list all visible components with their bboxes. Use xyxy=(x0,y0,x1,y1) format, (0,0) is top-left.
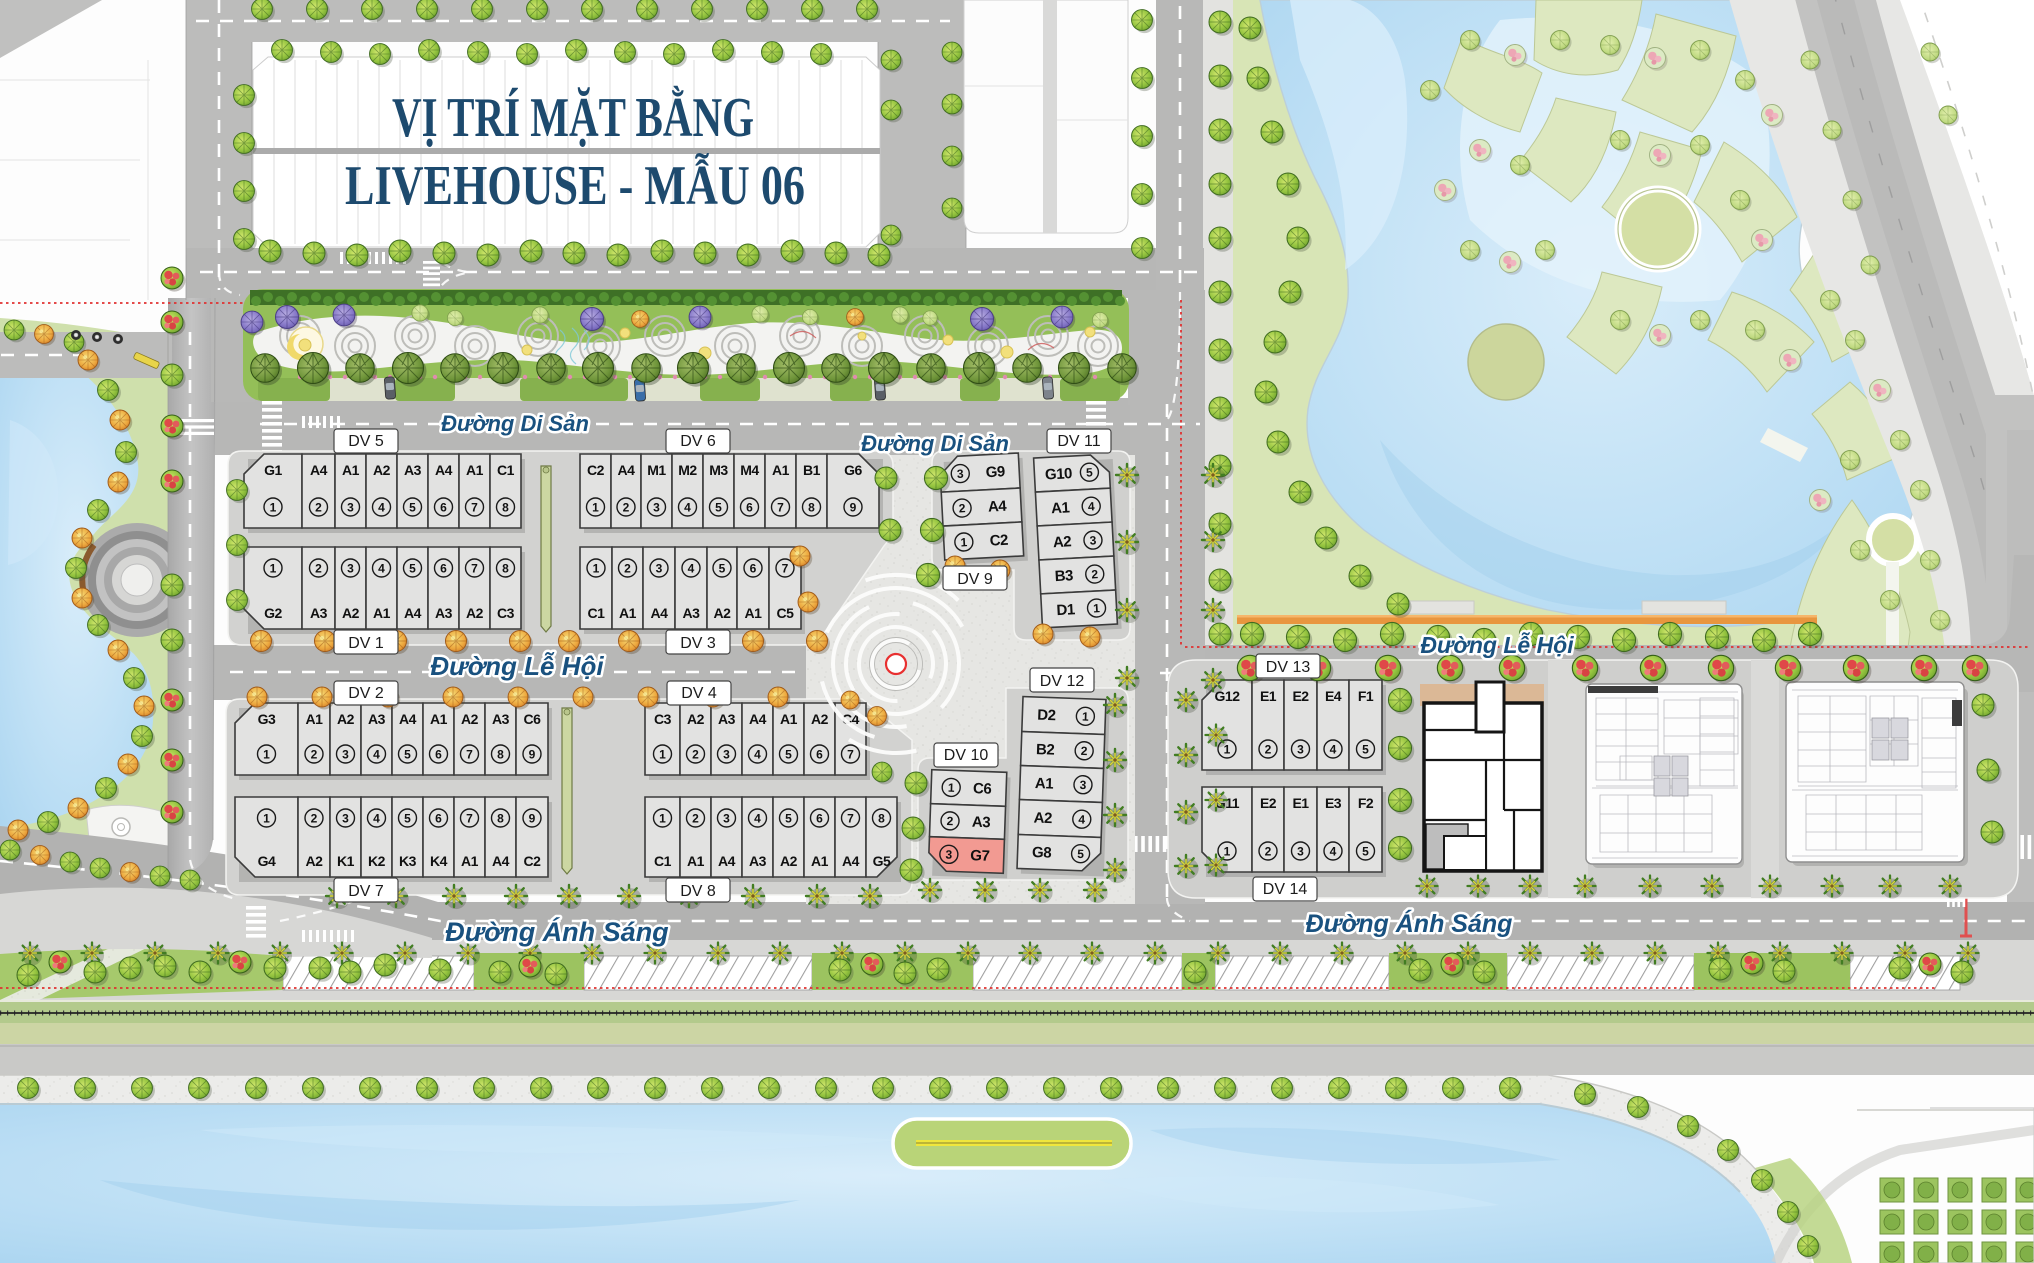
svg-text:A3: A3 xyxy=(310,605,328,621)
svg-text:2: 2 xyxy=(1081,744,1088,758)
svg-text:F2: F2 xyxy=(1358,795,1374,811)
svg-text:E2: E2 xyxy=(1292,688,1309,704)
svg-text:5: 5 xyxy=(785,811,792,825)
svg-text:A4: A4 xyxy=(842,853,860,869)
svg-text:4: 4 xyxy=(373,811,380,825)
svg-text:8: 8 xyxy=(497,811,504,825)
svg-text:7: 7 xyxy=(466,747,473,761)
svg-text:DV 6: DV 6 xyxy=(680,433,716,450)
svg-text:4: 4 xyxy=(378,500,385,514)
svg-text:A1: A1 xyxy=(430,711,448,727)
svg-text:A1: A1 xyxy=(461,853,479,869)
svg-text:C2: C2 xyxy=(989,532,1008,550)
svg-text:DV 4: DV 4 xyxy=(681,685,717,702)
svg-text:6: 6 xyxy=(816,811,823,825)
svg-text:G7: G7 xyxy=(970,847,990,865)
svg-text:2: 2 xyxy=(692,811,699,825)
svg-text:A1: A1 xyxy=(745,605,763,621)
svg-text:1: 1 xyxy=(1082,709,1089,723)
svg-text:K1: K1 xyxy=(337,853,355,869)
svg-text:3: 3 xyxy=(945,848,952,862)
svg-text:9: 9 xyxy=(529,811,536,825)
svg-text:3: 3 xyxy=(347,500,354,514)
svg-text:5: 5 xyxy=(1362,742,1369,756)
svg-text:A1: A1 xyxy=(373,605,391,621)
svg-text:A3: A3 xyxy=(492,711,510,727)
svg-text:2: 2 xyxy=(311,747,318,761)
svg-text:5: 5 xyxy=(715,500,722,514)
svg-text:A4: A4 xyxy=(718,853,736,869)
svg-text:C1: C1 xyxy=(654,853,672,869)
svg-text:K2: K2 xyxy=(368,853,386,869)
svg-text:2: 2 xyxy=(315,561,322,575)
svg-text:5: 5 xyxy=(409,500,416,514)
svg-text:4: 4 xyxy=(1330,742,1337,756)
svg-text:M1: M1 xyxy=(647,462,666,478)
svg-text:2: 2 xyxy=(692,747,699,761)
svg-text:A2: A2 xyxy=(461,711,479,727)
svg-text:1: 1 xyxy=(948,781,955,795)
svg-text:1: 1 xyxy=(270,561,277,575)
svg-text:B3: B3 xyxy=(1054,567,1073,585)
svg-text:8: 8 xyxy=(878,811,885,825)
svg-text:G8: G8 xyxy=(1032,844,1052,862)
svg-text:D2: D2 xyxy=(1037,707,1056,725)
svg-text:C6: C6 xyxy=(973,780,992,798)
svg-text:C2: C2 xyxy=(587,462,605,478)
svg-text:DV 5: DV 5 xyxy=(348,433,384,450)
svg-text:2: 2 xyxy=(624,561,631,575)
svg-text:A1: A1 xyxy=(619,605,637,621)
svg-text:A3: A3 xyxy=(368,711,386,727)
svg-text:C1: C1 xyxy=(497,462,515,478)
svg-text:5: 5 xyxy=(404,747,411,761)
svg-text:4: 4 xyxy=(1330,844,1337,858)
svg-text:7: 7 xyxy=(847,811,854,825)
svg-text:G6: G6 xyxy=(844,462,862,478)
svg-text:1: 1 xyxy=(1224,844,1231,858)
svg-text:3: 3 xyxy=(957,467,965,481)
svg-text:7: 7 xyxy=(471,561,478,575)
svg-text:A4: A4 xyxy=(988,498,1008,516)
svg-text:A4: A4 xyxy=(492,853,510,869)
svg-text:5: 5 xyxy=(719,561,726,575)
svg-text:VỊ TRÍ MẶT BẰNG: VỊ TRÍ MẶT BẰNG xyxy=(392,85,754,149)
svg-text:A4: A4 xyxy=(749,711,767,727)
svg-text:K3: K3 xyxy=(399,853,417,869)
svg-text:B2: B2 xyxy=(1036,741,1055,759)
svg-text:1: 1 xyxy=(960,535,968,549)
svg-text:G5: G5 xyxy=(873,853,891,869)
svg-text:5: 5 xyxy=(404,811,411,825)
svg-text:A2: A2 xyxy=(714,605,732,621)
svg-text:1: 1 xyxy=(263,811,270,825)
svg-text:A3: A3 xyxy=(683,605,701,621)
svg-text:8: 8 xyxy=(808,500,815,514)
svg-text:A1: A1 xyxy=(306,711,324,727)
svg-text:8: 8 xyxy=(497,747,504,761)
svg-text:DV 11: DV 11 xyxy=(1057,433,1100,450)
svg-text:E4: E4 xyxy=(1325,688,1342,704)
svg-text:A2: A2 xyxy=(811,711,829,727)
svg-text:1: 1 xyxy=(263,747,270,761)
svg-text:A4: A4 xyxy=(404,605,422,621)
svg-text:DV 10: DV 10 xyxy=(944,747,989,764)
svg-text:4: 4 xyxy=(688,561,695,575)
svg-text:M2: M2 xyxy=(678,462,697,478)
svg-text:C3: C3 xyxy=(654,711,672,727)
svg-text:C5: C5 xyxy=(777,605,795,621)
svg-text:6: 6 xyxy=(435,811,442,825)
svg-text:G2: G2 xyxy=(264,605,282,621)
svg-text:A4: A4 xyxy=(651,605,669,621)
svg-text:A4: A4 xyxy=(399,711,417,727)
svg-text:D1: D1 xyxy=(1056,601,1075,619)
svg-text:1: 1 xyxy=(659,747,666,761)
svg-text:7: 7 xyxy=(466,811,473,825)
svg-text:3: 3 xyxy=(342,747,349,761)
svg-text:A1: A1 xyxy=(687,853,705,869)
svg-text:3: 3 xyxy=(656,561,663,575)
svg-text:Đường Lễ Hội: Đường Lễ Hội xyxy=(430,651,604,681)
svg-text:C3: C3 xyxy=(497,605,515,621)
svg-text:A3: A3 xyxy=(972,814,991,832)
svg-text:DV 2: DV 2 xyxy=(348,685,384,702)
svg-text:2: 2 xyxy=(1265,844,1272,858)
svg-text:A3: A3 xyxy=(718,711,736,727)
svg-text:3: 3 xyxy=(1079,778,1086,792)
svg-text:3: 3 xyxy=(342,811,349,825)
svg-text:7: 7 xyxy=(471,500,478,514)
svg-text:4: 4 xyxy=(754,747,761,761)
svg-text:DV 9: DV 9 xyxy=(957,571,993,588)
svg-text:1: 1 xyxy=(592,500,599,514)
svg-text:G9: G9 xyxy=(985,463,1005,481)
svg-text:9: 9 xyxy=(850,500,857,514)
svg-text:6: 6 xyxy=(440,561,447,575)
svg-text:3: 3 xyxy=(723,747,730,761)
svg-text:4: 4 xyxy=(378,561,385,575)
svg-text:E1: E1 xyxy=(1260,688,1277,704)
svg-text:DV 1: DV 1 xyxy=(348,635,384,652)
svg-text:2: 2 xyxy=(1091,567,1099,581)
svg-text:3: 3 xyxy=(1297,742,1304,756)
svg-text:3: 3 xyxy=(723,811,730,825)
svg-text:A1: A1 xyxy=(772,462,790,478)
svg-text:A3: A3 xyxy=(749,853,767,869)
svg-text:A2: A2 xyxy=(687,711,705,727)
svg-text:4: 4 xyxy=(754,811,761,825)
svg-text:A2: A2 xyxy=(1053,533,1072,551)
svg-text:2: 2 xyxy=(1265,742,1272,756)
svg-text:Đường Ánh Sáng: Đường Ánh Sáng xyxy=(1306,909,1513,938)
svg-text:LIVEHOUSE - MẪU 06: LIVEHOUSE - MẪU 06 xyxy=(345,152,805,217)
svg-text:DV 12: DV 12 xyxy=(1040,673,1085,690)
svg-text:A1: A1 xyxy=(1035,775,1054,793)
svg-text:E1: E1 xyxy=(1292,795,1309,811)
svg-text:6: 6 xyxy=(750,561,757,575)
svg-text:7: 7 xyxy=(777,500,784,514)
svg-text:A3: A3 xyxy=(435,605,453,621)
svg-text:Đường Di Sản: Đường Di Sản xyxy=(441,411,589,436)
svg-text:A2: A2 xyxy=(466,605,484,621)
svg-text:M3: M3 xyxy=(709,462,728,478)
svg-text:E2: E2 xyxy=(1260,795,1277,811)
svg-text:4: 4 xyxy=(684,500,691,514)
svg-text:C6: C6 xyxy=(524,711,542,727)
svg-text:4: 4 xyxy=(373,747,380,761)
svg-text:1: 1 xyxy=(593,561,600,575)
svg-text:A1: A1 xyxy=(466,462,484,478)
svg-text:DV 7: DV 7 xyxy=(348,883,384,900)
svg-text:A1: A1 xyxy=(342,462,360,478)
svg-text:A2: A2 xyxy=(342,605,360,621)
svg-text:A2: A2 xyxy=(373,462,391,478)
svg-text:DV 14: DV 14 xyxy=(1263,881,1308,898)
svg-text:A1: A1 xyxy=(1051,499,1070,517)
svg-text:K4: K4 xyxy=(430,853,448,869)
svg-text:3: 3 xyxy=(653,500,660,514)
svg-text:6: 6 xyxy=(746,500,753,514)
svg-text:2: 2 xyxy=(311,811,318,825)
svg-text:A4: A4 xyxy=(618,462,636,478)
svg-text:2: 2 xyxy=(946,814,953,828)
svg-text:1: 1 xyxy=(270,500,277,514)
svg-text:3: 3 xyxy=(1297,844,1304,858)
svg-text:8: 8 xyxy=(502,561,509,575)
svg-text:Đường Di Sản: Đường Di Sản xyxy=(861,431,1009,456)
svg-text:A2: A2 xyxy=(1033,810,1052,828)
svg-text:C2: C2 xyxy=(524,853,542,869)
svg-text:DV 3: DV 3 xyxy=(680,635,716,652)
svg-text:1: 1 xyxy=(1093,601,1101,615)
svg-text:6: 6 xyxy=(816,747,823,761)
svg-text:A4: A4 xyxy=(310,462,328,478)
svg-text:3: 3 xyxy=(1089,533,1097,547)
svg-text:8: 8 xyxy=(502,500,509,514)
svg-text:A2: A2 xyxy=(337,711,355,727)
svg-text:DV 13: DV 13 xyxy=(1266,659,1311,676)
svg-text:A2: A2 xyxy=(306,853,324,869)
svg-text:6: 6 xyxy=(440,500,447,514)
svg-text:A4: A4 xyxy=(435,462,453,478)
svg-text:Đường Ánh Sáng: Đường Ánh Sáng xyxy=(445,916,669,947)
svg-text:Đường Lễ Hội: Đường Lễ Hội xyxy=(1420,631,1574,658)
svg-text:G10: G10 xyxy=(1045,465,1073,483)
svg-text:G4: G4 xyxy=(258,853,276,869)
svg-text:A1: A1 xyxy=(811,853,829,869)
svg-text:A1: A1 xyxy=(780,711,798,727)
svg-text:5: 5 xyxy=(1362,844,1369,858)
svg-text:F1: F1 xyxy=(1358,688,1374,704)
svg-text:G3: G3 xyxy=(258,711,276,727)
svg-text:9: 9 xyxy=(529,747,536,761)
svg-text:M4: M4 xyxy=(740,462,759,478)
svg-text:DV 8: DV 8 xyxy=(680,883,716,900)
svg-text:2: 2 xyxy=(315,500,322,514)
svg-text:A2: A2 xyxy=(780,853,798,869)
svg-text:5: 5 xyxy=(1077,847,1084,861)
svg-text:4: 4 xyxy=(1078,812,1085,826)
svg-text:5: 5 xyxy=(409,561,416,575)
svg-text:4: 4 xyxy=(1088,499,1096,513)
svg-text:C1: C1 xyxy=(588,605,606,621)
svg-text:A3: A3 xyxy=(404,462,422,478)
svg-text:G1: G1 xyxy=(264,462,282,478)
svg-text:5: 5 xyxy=(785,747,792,761)
svg-text:7: 7 xyxy=(782,561,789,575)
svg-text:6: 6 xyxy=(435,747,442,761)
svg-text:3: 3 xyxy=(347,561,354,575)
svg-text:2: 2 xyxy=(958,501,966,515)
svg-text:2: 2 xyxy=(623,500,630,514)
svg-text:7: 7 xyxy=(847,747,854,761)
svg-text:E3: E3 xyxy=(1325,795,1342,811)
svg-text:1: 1 xyxy=(659,811,666,825)
svg-text:5: 5 xyxy=(1086,465,1094,479)
svg-text:B1: B1 xyxy=(803,462,821,478)
